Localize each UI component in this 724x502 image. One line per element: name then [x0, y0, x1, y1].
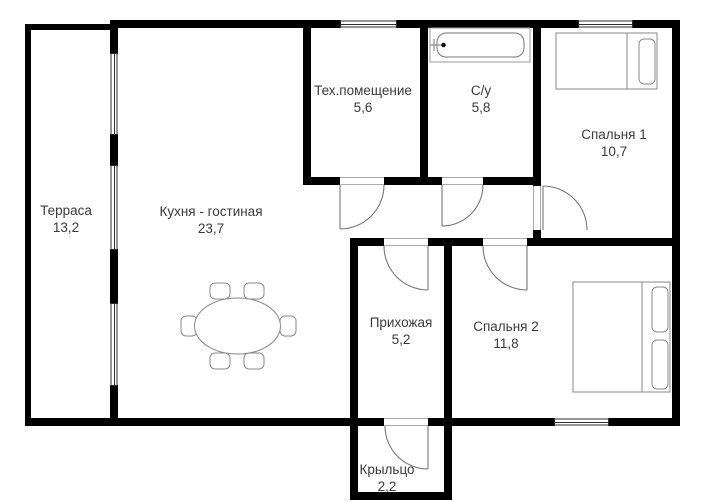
door-bedroom2: [483, 246, 527, 290]
room-area: 5,2: [370, 331, 433, 348]
chair: [244, 353, 264, 369]
room-name: Спальня 1: [581, 126, 647, 143]
floor-plan-drawing: [0, 0, 724, 502]
room-label-porch: Крыльцо 2,2: [359, 461, 414, 495]
room-area: 10,7: [581, 143, 647, 160]
door-thresholds: [340, 178, 541, 426]
room-name: Прихожая: [370, 314, 433, 331]
window-west-3: [110, 303, 118, 386]
bed-single: [556, 33, 657, 89]
floor-plan: Терраса 13,2 Кухня - гостиная 23,7 Тех.п…: [0, 0, 724, 502]
window-top-bedroom1: [578, 20, 633, 28]
wall-tech-west: [303, 28, 311, 185]
dining-table: [181, 283, 296, 369]
room-label-tech-room: Тех.помещение 5,6: [314, 82, 412, 116]
room-area: 11,8: [473, 335, 539, 352]
chair: [244, 283, 264, 299]
room-area: 2,2: [359, 478, 414, 495]
wall-right: [672, 20, 680, 426]
chair: [210, 283, 230, 299]
room-label-hallway: Прихожая 5,2: [370, 314, 433, 348]
room-name: Тех.помещение: [314, 82, 412, 99]
window-west-1: [110, 53, 118, 135]
wall-hall-west: [350, 238, 358, 500]
window-west-2: [110, 165, 118, 250]
room-name: Спальня 2: [473, 318, 539, 335]
window-top-tech: [340, 20, 397, 28]
window-bottom-bedroom2: [554, 418, 609, 426]
door-bedroom1: [543, 186, 587, 230]
room-area: 13,2: [40, 219, 92, 236]
wall-tech-bath-south: [303, 177, 541, 185]
room-label-kitchen-living: Кухня - гостиная 23,7: [159, 203, 262, 237]
room-area: 5,6: [314, 99, 412, 116]
room-name: Крыльцо: [359, 461, 414, 478]
wall-tech-bath-divider: [420, 28, 428, 185]
door-tech-room: [340, 185, 384, 229]
room-label-terrace: Терраса 13,2: [40, 202, 92, 236]
door-bathroom: [442, 185, 483, 226]
wall-terrace-top: [25, 24, 110, 30]
room-label-bedroom-1: Спальня 1 10,7: [581, 126, 647, 160]
room-label-bedroom-2: Спальня 2 11,8: [473, 318, 539, 352]
bathtub: [430, 28, 530, 62]
door-hallway: [384, 246, 428, 290]
room-area: 23,7: [159, 220, 262, 237]
wall-terrace-left: [25, 24, 31, 426]
room-name: Кухня - гостиная: [159, 203, 262, 220]
bed-double: [573, 282, 670, 392]
chair: [210, 353, 230, 369]
table-top: [195, 298, 281, 354]
wall-hall-east: [444, 238, 452, 500]
room-area: 5,8: [471, 99, 491, 116]
room-name: С/у: [471, 82, 491, 99]
room-label-bathroom: С/у 5,8: [471, 82, 491, 116]
chair: [280, 316, 296, 336]
room-name: Терраса: [40, 202, 92, 219]
